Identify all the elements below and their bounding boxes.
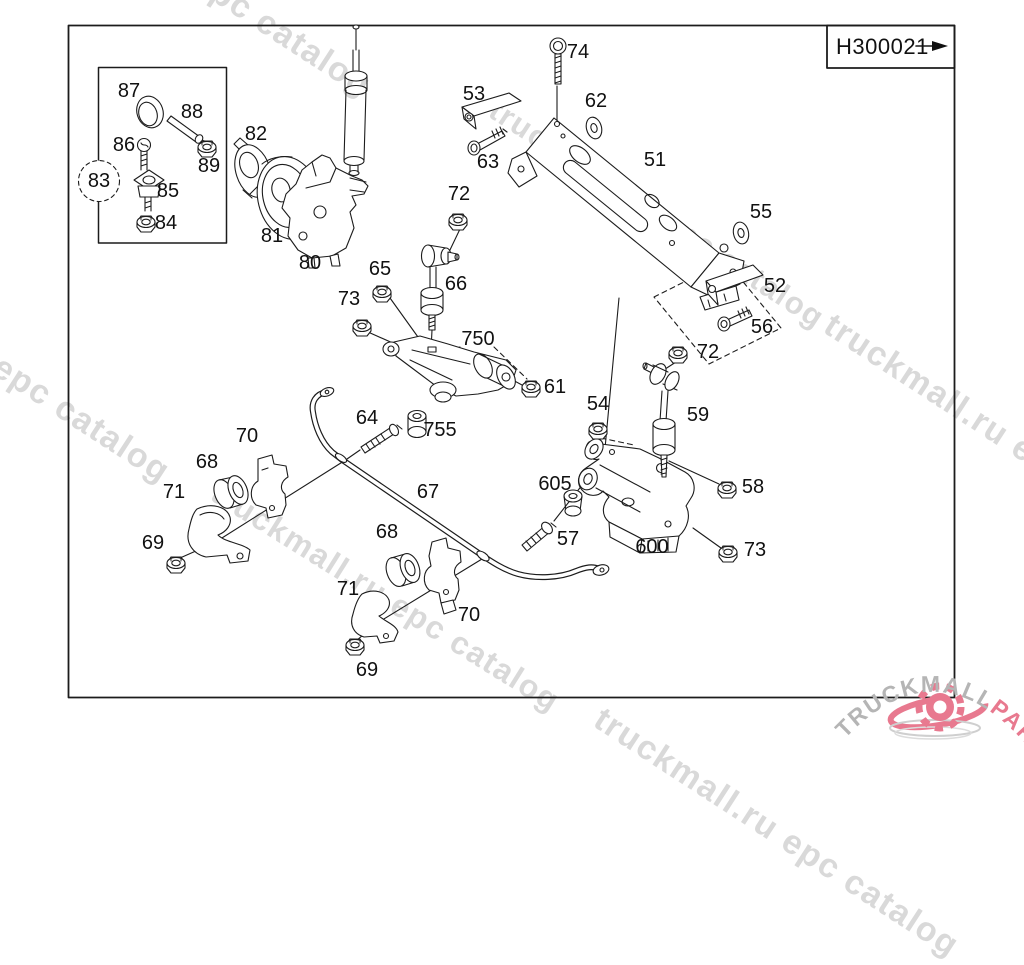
- part-label-74: 74: [567, 42, 589, 62]
- parts-catalog-page: { "diagram": { "code": "H300021", "frame…: [0, 0, 1024, 750]
- part-label-72: 72: [448, 184, 470, 204]
- part-label-83: 83: [88, 171, 110, 191]
- part-label-61: 61: [544, 377, 566, 397]
- part-label-89: 89: [198, 156, 220, 176]
- part-label-55: 55: [750, 202, 772, 222]
- part-label-63: 63: [477, 152, 499, 172]
- part-label-85: 85: [157, 181, 179, 201]
- part-label-81: 81: [261, 226, 283, 246]
- part-label-58: 58: [742, 477, 764, 497]
- part-label-59: 59: [687, 405, 709, 425]
- part-label-64: 64: [356, 408, 378, 428]
- part-label-71: 71: [163, 482, 185, 502]
- part-label-755: 755: [423, 420, 456, 440]
- part-label-84: 84: [155, 213, 177, 233]
- part-label-53: 53: [463, 84, 485, 104]
- part-label-70: 70: [236, 426, 258, 446]
- part-label-88: 88: [181, 102, 203, 122]
- part-label-72: 72: [697, 342, 719, 362]
- part-label-605: 605: [538, 474, 571, 494]
- part-label-750: 750: [461, 329, 494, 349]
- part-label-68: 68: [376, 522, 398, 542]
- part-label-73: 73: [744, 540, 766, 560]
- part-label-69: 69: [356, 660, 378, 680]
- part-labels-layer: 7487536288828651638983857255848180656652…: [0, 0, 1024, 750]
- part-label-80: 80: [299, 253, 321, 273]
- part-label-66: 66: [445, 274, 467, 294]
- part-label-71: 71: [337, 579, 359, 599]
- part-label-65: 65: [369, 259, 391, 279]
- part-label-82: 82: [245, 124, 267, 144]
- part-label-62: 62: [585, 91, 607, 111]
- part-label-600: 600: [635, 537, 668, 557]
- part-label-68: 68: [196, 452, 218, 472]
- part-label-69: 69: [142, 533, 164, 553]
- part-label-52: 52: [764, 276, 786, 296]
- part-label-73: 73: [338, 289, 360, 309]
- part-label-56: 56: [751, 317, 773, 337]
- diagram-code: H300021: [836, 34, 929, 60]
- part-label-87: 87: [118, 81, 140, 101]
- part-label-57: 57: [557, 529, 579, 549]
- part-label-67: 67: [417, 482, 439, 502]
- part-label-54: 54: [587, 394, 609, 414]
- part-label-70: 70: [458, 605, 480, 625]
- part-label-51: 51: [644, 150, 666, 170]
- part-label-86: 86: [113, 135, 135, 155]
